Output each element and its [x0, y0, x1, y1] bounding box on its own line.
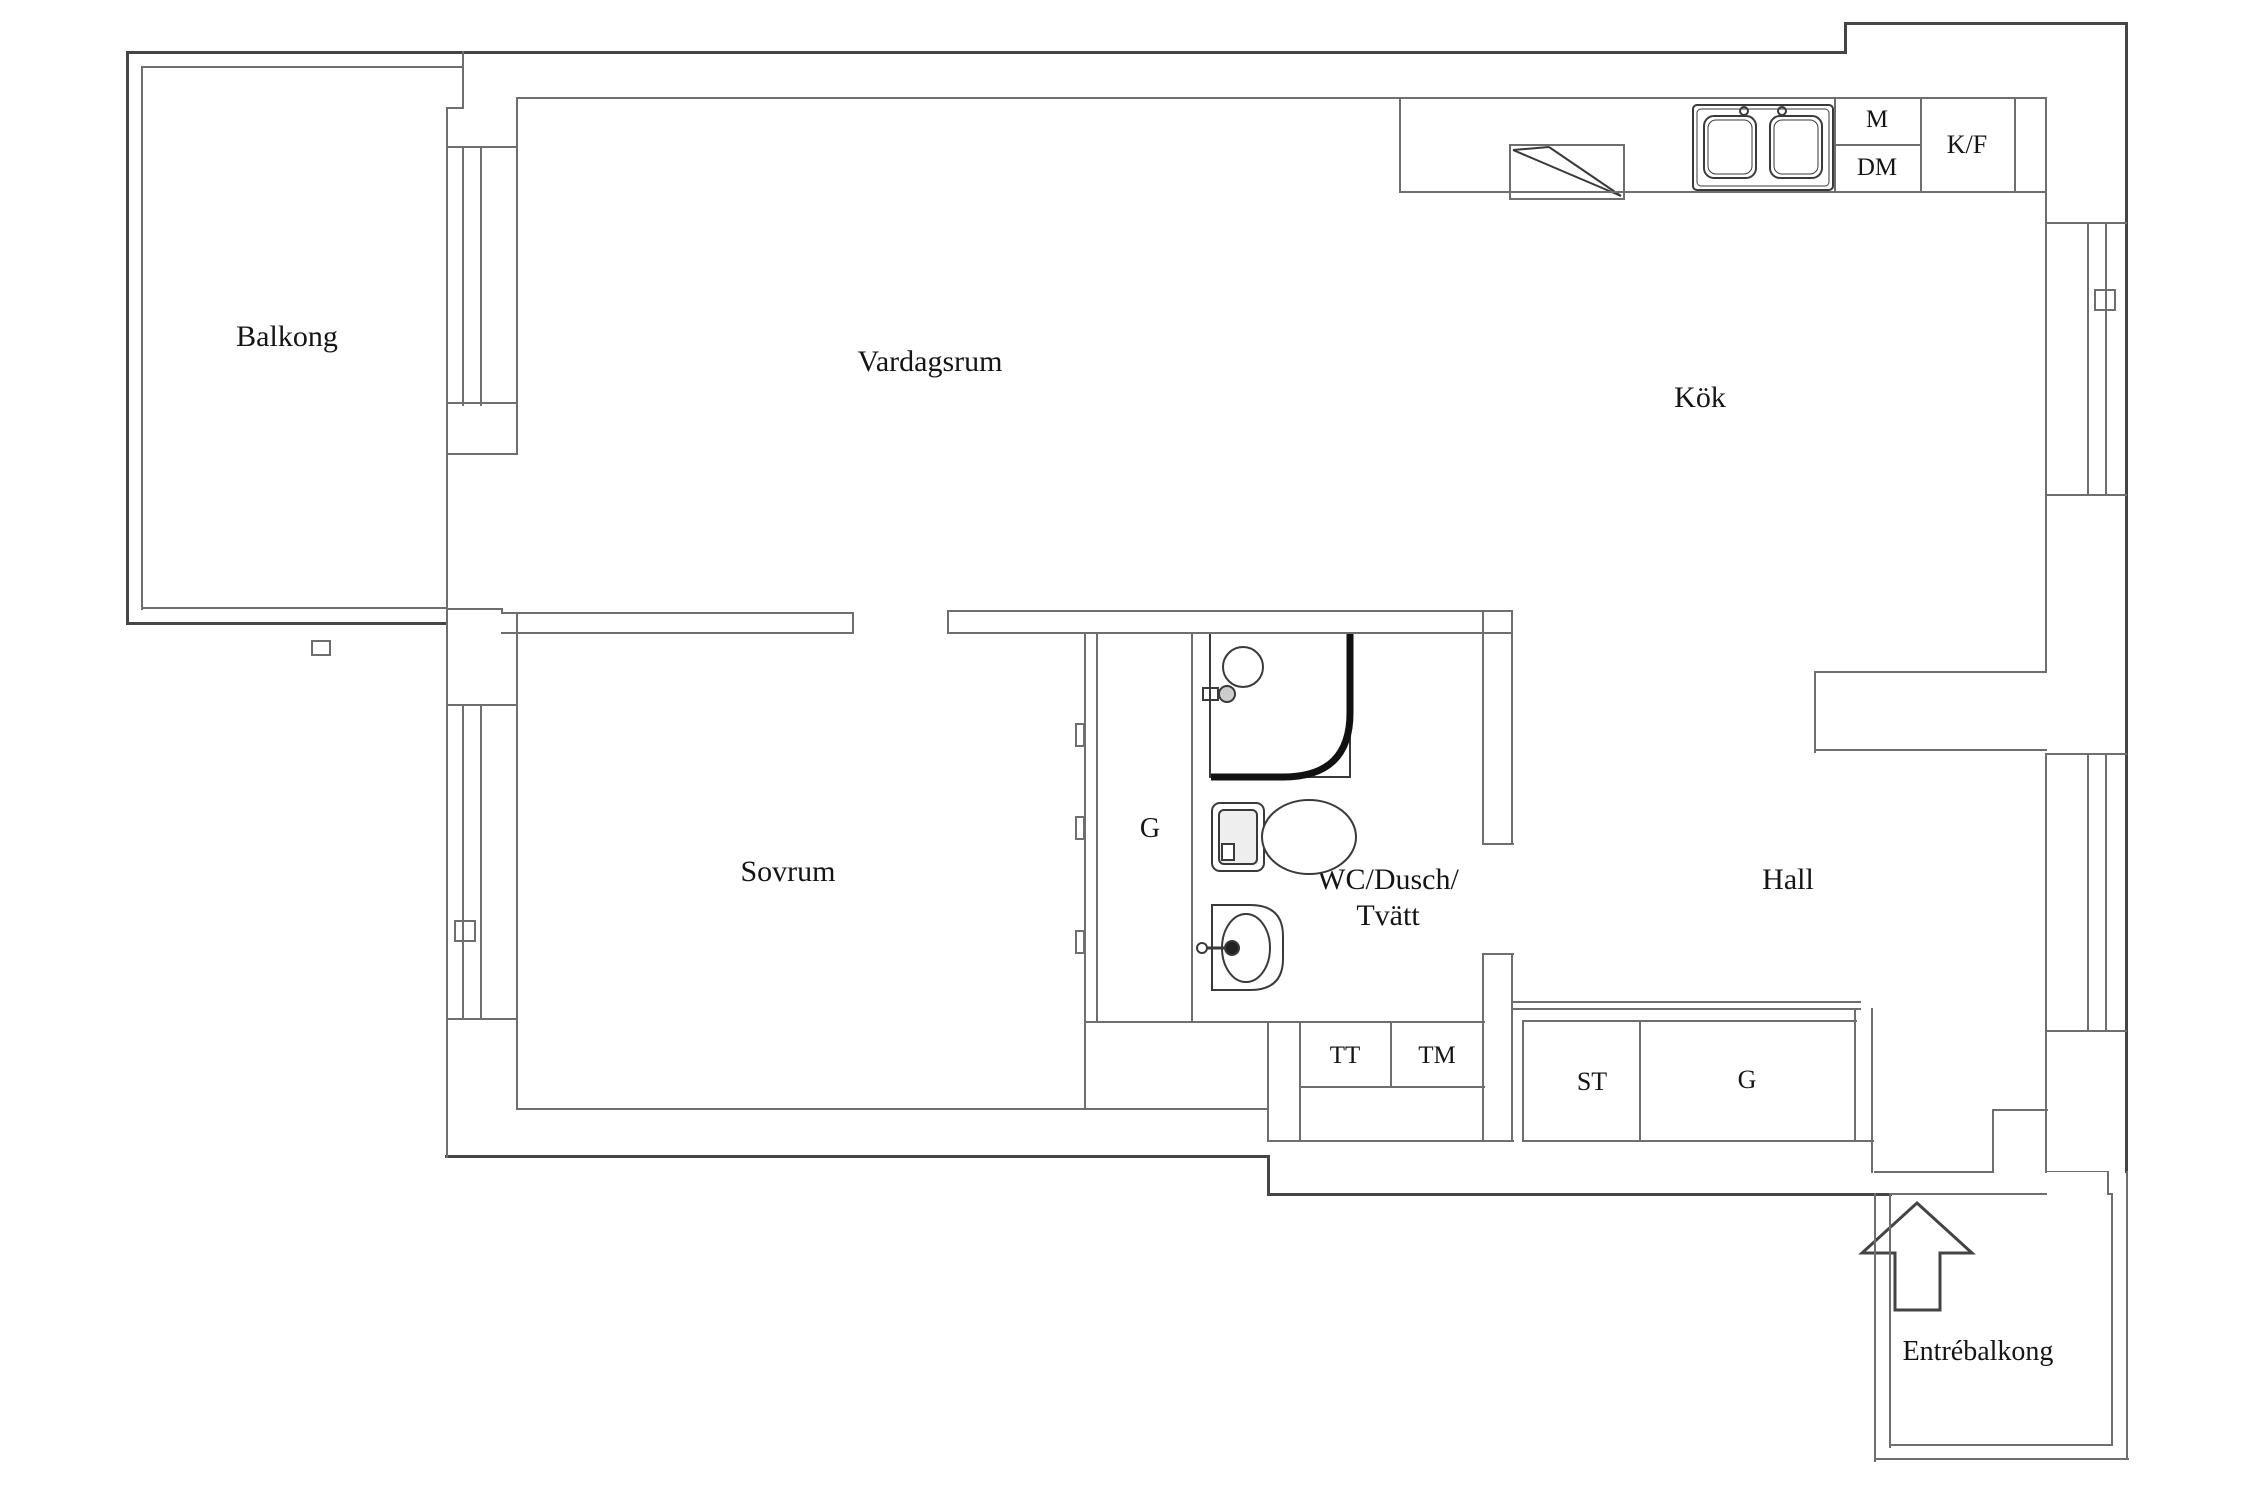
- balcony-label: Balkong: [236, 320, 338, 354]
- wall-segment: [1482, 953, 1484, 1142]
- bathroom-label-line1: WC/Dusch/: [1317, 862, 1459, 898]
- wall-segment: [1299, 1021, 1301, 1142]
- wall-segment: [1889, 1193, 2047, 1195]
- bathroom-label: WC/Dusch/ Tvätt: [1317, 862, 1459, 934]
- wall-segment: [1522, 1020, 1524, 1142]
- wall-segment: [1509, 198, 1625, 200]
- wall-segment: [2045, 1030, 2047, 1111]
- wall-segment: [446, 453, 448, 610]
- wall-segment: [516, 612, 518, 706]
- entrance-arrow-icon: [1862, 1203, 1972, 1310]
- wall-segment: [1874, 1193, 1876, 1462]
- wall-segment: [2045, 192, 2047, 496]
- wall-segment: [1267, 1021, 1269, 1142]
- wall-segment: [1834, 144, 1922, 146]
- wall-segment: [2087, 753, 2089, 1032]
- wall-segment: [446, 146, 518, 148]
- wall-segment: [1191, 632, 1193, 1023]
- microwave-label: M: [1866, 106, 1888, 134]
- wall-segment: [2087, 222, 2089, 496]
- wall-segment: [1267, 1155, 1270, 1196]
- wall-segment: [446, 146, 448, 406]
- stove-icon: [1513, 147, 1621, 196]
- wall-segment: [947, 632, 1513, 634]
- wall-segment: [1299, 1086, 1485, 1088]
- wall-segment: [445, 1155, 1269, 1158]
- wall-segment: [446, 704, 448, 1020]
- wall-segment: [852, 612, 854, 634]
- wall-segment: [446, 107, 448, 148]
- cleaning-closet-label: ST: [1577, 1067, 1607, 1097]
- wall-segment: [1482, 610, 1484, 845]
- wall-segment: [126, 622, 448, 625]
- wall-segment: [1511, 610, 1513, 845]
- bedroom-label: Sovrum: [740, 855, 835, 889]
- wall-segment: [1511, 953, 1513, 1142]
- wall-segment: [480, 704, 482, 1020]
- wall-segment: [2045, 1109, 2047, 1173]
- wall-segment: [1992, 1109, 1994, 1173]
- wall-segment: [462, 51, 464, 109]
- floor-plan: Balkong Vardagsrum Kök Sovrum Hall WC/Du…: [0, 0, 2250, 1500]
- wall-segment: [1844, 22, 1847, 54]
- wall-segment: [1509, 144, 1625, 146]
- wall-segment: [1482, 953, 1514, 955]
- hall-wardrobe-label: G: [1738, 1065, 1757, 1095]
- wall-segment: [2126, 1171, 2128, 1460]
- wall-segment: [2045, 97, 2047, 193]
- wall-segment: [1399, 191, 2047, 193]
- wall-segment: [1267, 1193, 1892, 1196]
- wall-segment: [2045, 494, 2047, 673]
- hall-label: Hall: [1762, 863, 1814, 897]
- wall-segment: [2045, 1030, 2127, 1032]
- wall-segment: [2107, 1193, 2113, 1195]
- living-room-label: Vardagsrum: [858, 345, 1003, 379]
- kitchen-label: Kök: [1674, 381, 1726, 415]
- wall-segment: [141, 66, 143, 610]
- wall-segment: [947, 610, 949, 634]
- shower-icon: [1203, 633, 1350, 777]
- wall-segment: [516, 1108, 1269, 1110]
- wall-segment: [446, 453, 518, 455]
- wall-segment: [1509, 144, 1511, 200]
- wall-segment: [1871, 1008, 1873, 1173]
- drying-cabinet-label: TT: [1330, 1042, 1361, 1070]
- wall-segment: [2045, 753, 2047, 1032]
- wall-segment: [516, 97, 2046, 99]
- wall-segment: [1511, 1008, 1861, 1010]
- wall-segment: [1874, 1171, 1994, 1173]
- wall-segment: [1511, 1001, 1861, 1003]
- wall-segment: [1814, 671, 1816, 753]
- bathroom-label-line2: Tvätt: [1317, 898, 1459, 934]
- wall-segment: [947, 610, 1513, 612]
- wall-segment: [501, 612, 854, 614]
- wall-segment: [1096, 632, 1098, 1023]
- wall-segment: [1814, 749, 2047, 751]
- wall-segment: [1084, 632, 1086, 1110]
- wall-segment: [1191, 1021, 1485, 1023]
- wall-segment: [446, 402, 518, 404]
- wall-segment: [2111, 1193, 2113, 1446]
- wall-segment: [1992, 1109, 2048, 1111]
- wall-segment: [1482, 843, 1514, 845]
- balcony-detail-icon: [311, 640, 331, 656]
- wall-segment: [1522, 1140, 1874, 1142]
- bedroom-wardrobe-label: G: [1140, 813, 1160, 845]
- wall-segment: [126, 51, 129, 625]
- wall-segment: [516, 704, 518, 1020]
- wall-segment: [1084, 1021, 1194, 1023]
- fridge-freezer-label: K/F: [1947, 130, 1987, 160]
- wall-segment: [446, 1018, 518, 1020]
- wall-segment: [1399, 97, 1401, 193]
- wall-segment: [2107, 1171, 2109, 1195]
- entry-balcony-label: Entrébalkong: [1903, 1336, 2054, 1368]
- wall-segment: [1814, 671, 2047, 673]
- wall-segment: [126, 51, 1846, 54]
- wall-segment: [1623, 144, 1625, 200]
- wall-segment: [2125, 22, 2128, 1173]
- wall-segment: [448, 107, 464, 109]
- wall-segment: [1639, 1020, 1641, 1142]
- wall-segment: [141, 607, 448, 609]
- wall-segment: [1390, 1021, 1392, 1088]
- wall-segment: [446, 608, 448, 706]
- wall-segment: [1889, 1193, 1891, 1448]
- wall-segment: [2045, 222, 2127, 224]
- wall-segment: [2045, 1171, 2109, 1172]
- wall-segment: [1522, 1020, 1857, 1022]
- wall-segment: [446, 704, 518, 706]
- dishwasher-label: DM: [1857, 154, 1897, 182]
- bathroom-sink-icon: [1197, 905, 1283, 990]
- wall-segment: [2045, 494, 2127, 496]
- wall-segment: [2105, 753, 2107, 1032]
- wall-segment: [480, 146, 482, 406]
- wall-segment: [1844, 22, 2128, 25]
- bedroom-window-handle-icon: [454, 920, 476, 942]
- wall-segment: [1854, 1008, 1856, 1142]
- wall-segment: [2045, 753, 2127, 755]
- wall-segment: [2014, 97, 2016, 193]
- washing-machine-label: TM: [1418, 1042, 1456, 1070]
- wall-segment: [1267, 1140, 1514, 1142]
- wall-segment: [446, 1018, 448, 1158]
- wall-segment: [2105, 222, 2107, 496]
- wall-segment: [462, 146, 464, 406]
- wall-segment: [446, 608, 503, 610]
- wall-segment: [1889, 1444, 2113, 1446]
- wall-segment: [501, 632, 854, 634]
- wall-segment: [462, 704, 464, 1020]
- wall-segment: [141, 66, 463, 68]
- wall-segment: [446, 402, 448, 455]
- kitchen-sink-icon: [1693, 105, 1833, 190]
- wall-segment: [516, 1018, 518, 1110]
- wall-segment: [1874, 1458, 2129, 1460]
